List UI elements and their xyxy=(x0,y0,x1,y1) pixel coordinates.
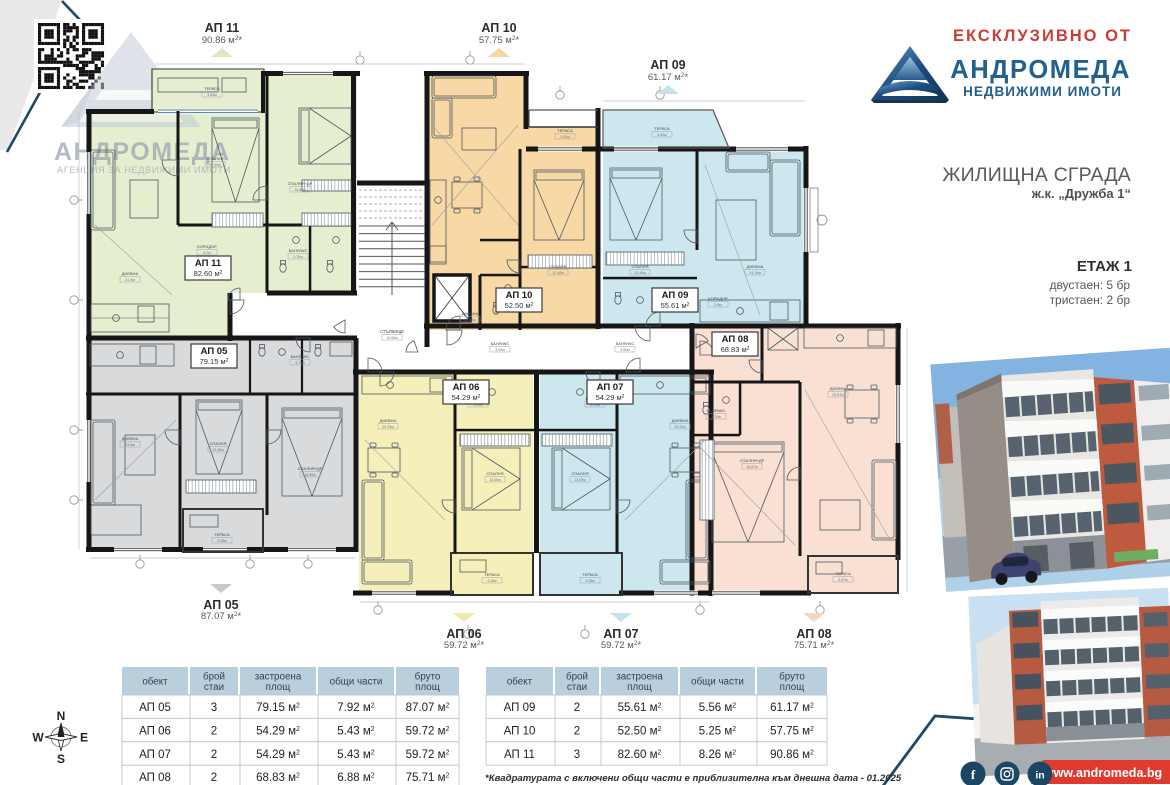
svg-text:АНДРОМЕДА: АНДРОМЕДА xyxy=(54,138,231,166)
svg-text:68.83 м2: 68.83 м2 xyxy=(721,345,750,354)
svg-text:АП 07: АП 07 xyxy=(597,382,624,393)
svg-text:3.82м: 3.82м xyxy=(657,133,667,137)
svg-text:ДНЕВНА: ДНЕВНА xyxy=(122,436,139,441)
svg-text:www.andromeda.bg: www.andromeda.bg xyxy=(1043,766,1162,780)
svg-text:16.80м: 16.80м xyxy=(294,188,306,192)
svg-text:3.50м: 3.50м xyxy=(495,348,505,352)
svg-text:E: E xyxy=(80,731,88,745)
svg-text:52.50 м2: 52.50 м2 xyxy=(618,725,662,737)
svg-text:5.56 м2: 5.56 м2 xyxy=(699,702,736,714)
svg-text:брой: брой xyxy=(203,672,225,683)
svg-text:54.29 м2: 54.29 м2 xyxy=(256,749,300,761)
svg-text:16.87м: 16.87м xyxy=(746,465,758,469)
svg-text:ТЕРАСА: ТЕРАСА xyxy=(204,86,220,91)
svg-text:АП 08: АП 08 xyxy=(796,627,831,641)
svg-text:СПАЛНЯ+ДР: СПАЛНЯ+ДР xyxy=(298,466,323,471)
svg-text:СПАЛНЯ+ДР: СПАЛНЯ+ДР xyxy=(740,458,765,463)
svg-text:in: in xyxy=(1035,770,1044,782)
svg-text:КОРИДОР: КОРИДОР xyxy=(197,244,217,249)
svg-text:5.43 м2: 5.43 м2 xyxy=(337,749,374,761)
svg-text:25.33м: 25.33м xyxy=(674,425,686,429)
svg-text:82.60 м2: 82.60 м2 xyxy=(618,749,662,761)
svg-text:54.29 м2: 54.29 м2 xyxy=(596,393,625,402)
svg-text:ДНЕВНА: ДНЕВНА xyxy=(462,311,479,316)
svg-text:СПАЛНЯ: СПАЛНЯ xyxy=(550,264,567,269)
svg-text:3.70м: 3.70м xyxy=(293,255,303,259)
svg-text:стаи: стаи xyxy=(567,682,587,693)
svg-text:АП 11: АП 11 xyxy=(205,21,240,35)
svg-text:БАНЯ/WC: БАНЯ/WC xyxy=(616,341,635,346)
svg-text:6.88 м2: 6.88 м2 xyxy=(337,772,374,784)
svg-text:двустаен: 5 бр: двустаен: 5 бр xyxy=(1049,278,1130,292)
svg-text:СПАЛНЯ: СПАЛНЯ xyxy=(207,156,224,161)
svg-text:6.2м: 6.2м xyxy=(203,251,211,255)
svg-text:обект: обект xyxy=(507,677,533,688)
svg-text:АП 10: АП 10 xyxy=(506,290,533,301)
svg-text:АП 06: АП 06 xyxy=(453,382,480,393)
svg-text:f: f xyxy=(971,767,976,782)
svg-text:ТЕРАСА: ТЕРАСА xyxy=(214,532,230,537)
svg-text:5.25 м2: 5.25 м2 xyxy=(699,725,736,737)
svg-text:3.82м: 3.82м xyxy=(207,93,217,97)
svg-text:АП 10: АП 10 xyxy=(481,21,516,35)
svg-text:БАНЯ/WC: БАНЯ/WC xyxy=(707,408,726,413)
svg-text:16.80м: 16.80м xyxy=(304,473,316,477)
svg-text:52.50 м2: 52.50 м2 xyxy=(505,301,534,310)
svg-text:75.71 м2: 75.71 м2 xyxy=(406,772,450,784)
svg-text:ДНЕВНА: ДНЕВНА xyxy=(747,264,764,269)
svg-text:БАНЯ/WC: БАНЯ/WC xyxy=(491,341,510,346)
svg-text:АП 08: АП 08 xyxy=(722,334,749,345)
svg-text:2: 2 xyxy=(211,772,217,784)
svg-text:57.75 м2: 57.75 м2 xyxy=(770,725,814,737)
svg-text:3.70м: 3.70м xyxy=(295,361,305,365)
svg-text:АНДРОМЕДА: АНДРОМЕДА xyxy=(950,56,1131,84)
svg-text:79.15 м2: 79.15 м2 xyxy=(200,357,229,366)
svg-text:55.61 м2: 55.61 м2 xyxy=(661,301,690,310)
svg-text:*Квадратурата с включени общи: *Квадратурата с включени общи части е пр… xyxy=(485,773,902,784)
svg-text:2: 2 xyxy=(574,702,580,714)
svg-text:СТЪЛБИЩЕ: СТЪЛБИЩЕ xyxy=(380,329,404,334)
svg-text:21.56м: 21.56м xyxy=(464,318,476,322)
svg-text:55.61 м2: 55.61 м2 xyxy=(618,702,662,714)
svg-text:ж.к. „Дружба 1“: ж.к. „Дружба 1“ xyxy=(1031,186,1131,201)
svg-text:АП 09: АП 09 xyxy=(662,290,689,301)
svg-text:ДНЕВНА: ДНЕВНА xyxy=(830,386,847,391)
svg-text:N: N xyxy=(57,709,66,723)
svg-text:АП 05: АП 05 xyxy=(201,346,228,357)
svg-text:82.60 м2: 82.60 м2 xyxy=(194,269,223,278)
svg-text:25.33м: 25.33м xyxy=(382,425,394,429)
svg-text:61.17 м2: 61.17 м2 xyxy=(770,702,814,714)
svg-text:3: 3 xyxy=(574,749,580,761)
svg-text:общи части: общи части xyxy=(691,677,744,688)
svg-text:застроена: застроена xyxy=(616,672,663,683)
svg-text:застроена: застроена xyxy=(255,672,302,683)
svg-text:12.40м: 12.40м xyxy=(212,448,224,452)
svg-text:БАНЯ/WC: БАНЯ/WC xyxy=(289,248,308,253)
svg-text:АП 07: АП 07 xyxy=(139,749,171,761)
svg-text:АП 11: АП 11 xyxy=(195,258,222,269)
svg-text:W: W xyxy=(32,731,44,745)
svg-text:8.26 м2: 8.26 м2 xyxy=(699,749,736,761)
svg-text:59.72 м2: 59.72 м2 xyxy=(406,749,450,761)
svg-text:ЕКСКЛУЗИВНО ОТ: ЕКСКЛУЗИВНО ОТ xyxy=(953,27,1132,45)
svg-text:ТЕРАСА: ТЕРАСА xyxy=(654,126,670,131)
svg-text:5.43 м2: 5.43 м2 xyxy=(337,725,374,737)
svg-text:АП 09: АП 09 xyxy=(650,58,685,72)
svg-text:10.65м: 10.65м xyxy=(386,336,398,340)
svg-text:СПАЛНЯ: СПАЛНЯ xyxy=(487,471,504,476)
svg-text:АП 10: АП 10 xyxy=(504,725,536,737)
svg-text:АП 09: АП 09 xyxy=(504,702,536,714)
svg-text:АП 11: АП 11 xyxy=(504,749,535,761)
svg-text:ТЕРАСА: ТЕРАСА xyxy=(484,572,500,577)
svg-text:площ: площ xyxy=(627,682,652,693)
svg-text:СПАЛНЯ: СПАЛНЯ xyxy=(632,264,649,269)
svg-text:ЕТАЖ 1: ЕТАЖ 1 xyxy=(1077,258,1132,275)
svg-text:2: 2 xyxy=(211,749,217,761)
svg-text:13.05м: 13.05м xyxy=(489,478,501,482)
svg-text:S: S xyxy=(57,752,65,766)
svg-text:ТЕРАСА: ТЕРАСА xyxy=(582,572,598,577)
svg-text:25.67м: 25.67м xyxy=(832,393,844,397)
svg-text:3.5м: 3.5м xyxy=(714,303,722,307)
svg-text:54.29 м2: 54.29 м2 xyxy=(452,393,481,402)
svg-text:59.72 м2: 59.72 м2 xyxy=(406,725,450,737)
svg-text:общи части: общи части xyxy=(330,677,383,688)
svg-text:90.86 м2: 90.86 м2 xyxy=(770,749,814,761)
svg-text:79.15 м2: 79.15 м2 xyxy=(256,702,300,714)
svg-text:АП 07: АП 07 xyxy=(603,627,638,641)
svg-text:ЖИЛИЩНА СГРАДА: ЖИЛИЩНА СГРАДА xyxy=(942,164,1131,186)
svg-text:АП 05: АП 05 xyxy=(203,598,238,612)
svg-text:брой: брой xyxy=(566,672,588,683)
svg-text:4.28м: 4.28м xyxy=(487,579,497,583)
svg-text:87.07 м2: 87.07 м2 xyxy=(406,702,450,714)
svg-text:12.40м: 12.40м xyxy=(209,163,221,167)
svg-text:АП 05: АП 05 xyxy=(139,702,171,714)
svg-text:13.05м: 13.05м xyxy=(574,478,586,482)
svg-text:2: 2 xyxy=(574,725,580,737)
svg-text:площ: площ xyxy=(266,682,291,693)
svg-text:КОРИДОР: КОРИДОР xyxy=(708,296,728,301)
svg-text:ДНЕВНА: ДНЕВНА xyxy=(672,418,689,423)
svg-text:21.5м: 21.5м xyxy=(125,443,135,447)
svg-text:12.40м: 12.40м xyxy=(634,271,646,275)
svg-text:4.28м: 4.28м xyxy=(585,579,595,583)
svg-text:СПАЛНЯ: СПАЛНЯ xyxy=(572,471,589,476)
svg-text:ДНЕВНА: ДНЕВНА xyxy=(380,418,397,423)
svg-text:АП 08: АП 08 xyxy=(139,772,171,784)
svg-text:2: 2 xyxy=(211,725,217,737)
svg-text:3.82м: 3.82м xyxy=(560,135,570,139)
svg-text:бруто: бруто xyxy=(779,672,805,683)
svg-text:3.50м: 3.50м xyxy=(620,348,630,352)
svg-text:АП 06: АП 06 xyxy=(446,627,481,641)
svg-text:3.93м: 3.93м xyxy=(217,539,227,543)
svg-text:АП 06: АП 06 xyxy=(139,725,171,737)
svg-text:ДНЕВНА: ДНЕВНА xyxy=(122,271,139,276)
svg-text:СПАЛНЯ: СПАЛНЯ xyxy=(210,441,227,446)
svg-text:бруто: бруто xyxy=(415,672,441,683)
svg-text:обект: обект xyxy=(142,677,168,688)
svg-text:3: 3 xyxy=(211,702,217,714)
svg-text:7.92 м2: 7.92 м2 xyxy=(337,702,374,714)
svg-text:стаи: стаи xyxy=(204,682,224,693)
svg-text:3.70м: 3.70м xyxy=(711,415,721,419)
svg-text:68.83 м2: 68.83 м2 xyxy=(256,772,300,784)
svg-text:24.19м: 24.19м xyxy=(749,271,761,275)
svg-text:54.29 м2: 54.29 м2 xyxy=(256,725,300,737)
svg-text:ТЕРАСА: ТЕРАСА xyxy=(835,571,851,576)
svg-text:БАНЯ/WC: БАНЯ/WC xyxy=(291,354,310,359)
svg-text:АГЕНЦИЯ ЗА НЕДВИЖИМИ ИМОТИ: АГЕНЦИЯ ЗА НЕДВИЖИМИ ИМОТИ xyxy=(57,165,231,176)
svg-text:3.87м: 3.87м xyxy=(838,578,848,582)
svg-text:СПАЛНЯ+ДР: СПАЛНЯ+ДР xyxy=(288,181,313,186)
svg-text:ТЕРАСА: ТЕРАСА xyxy=(557,128,573,133)
svg-text:21.5м: 21.5м xyxy=(125,278,135,282)
svg-text:площ: площ xyxy=(415,682,440,693)
svg-text:тристаен: 2 бр: тристаен: 2 бр xyxy=(1050,293,1131,307)
svg-text:площ: площ xyxy=(780,682,805,693)
svg-text:НЕДВИЖИМИ ИМОТИ: НЕДВИЖИМИ ИМОТИ xyxy=(963,84,1122,99)
svg-text:12.40м: 12.40м xyxy=(552,271,564,275)
